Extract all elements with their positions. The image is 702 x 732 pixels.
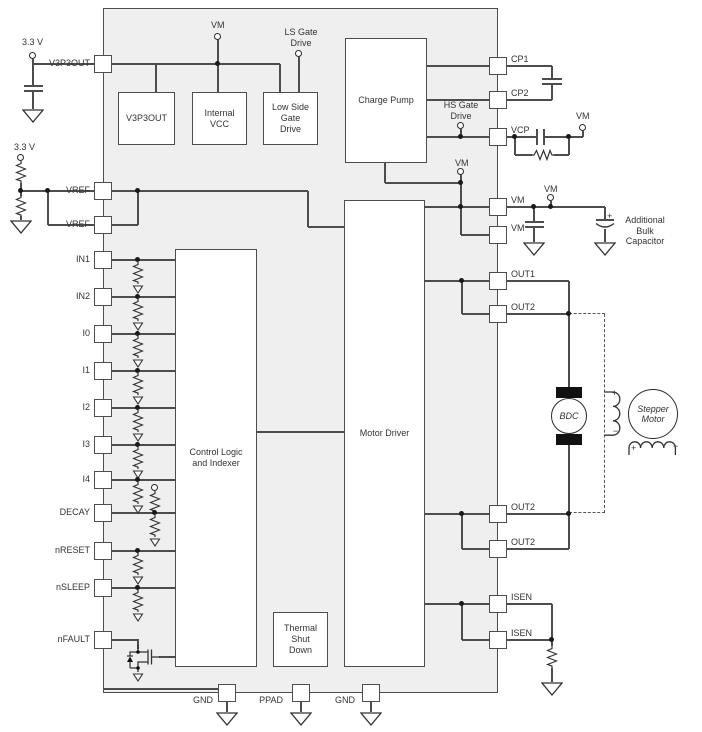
pin-i3 bbox=[94, 436, 112, 454]
pin-cp1 bbox=[489, 57, 507, 75]
pin-label: VCP bbox=[511, 125, 530, 136]
pin-label: OUT2 bbox=[511, 502, 535, 513]
pin-label: I2 bbox=[82, 402, 90, 413]
bdc-brush-bottom bbox=[556, 434, 582, 445]
pin-label: V3P3OUT bbox=[49, 58, 90, 69]
pin-vref-1 bbox=[94, 182, 112, 200]
terminal-3v3-vref bbox=[17, 154, 24, 161]
arrow-ground-icon bbox=[132, 359, 144, 368]
arrow-ground-icon bbox=[132, 505, 144, 514]
block-diagram: V3P3OUT Internal VCC Low Side Gate Drive… bbox=[0, 0, 702, 732]
terminal-3v3-top bbox=[29, 52, 36, 59]
terminal-vm-charge-pump bbox=[457, 168, 464, 175]
pin-label: DECAY bbox=[60, 507, 90, 518]
block-control-logic: Control Logic and Indexer bbox=[175, 249, 257, 667]
ground-icon bbox=[523, 242, 545, 256]
arrow-ground-icon bbox=[132, 613, 144, 622]
resistor bbox=[149, 515, 161, 537]
pin-label: I4 bbox=[82, 474, 90, 485]
pin-label: CP1 bbox=[511, 54, 529, 65]
pin-label: I0 bbox=[82, 328, 90, 339]
arrow-ground-icon bbox=[149, 538, 161, 547]
resistor bbox=[132, 590, 144, 612]
additional-bulk-capacitor-label: Additional Bulk Capacitor bbox=[613, 215, 677, 247]
pin-i2 bbox=[94, 399, 112, 417]
stepper-motor: Stepper Motor bbox=[628, 389, 678, 439]
pin-label: nFAULT bbox=[58, 634, 90, 645]
ground-icon bbox=[290, 712, 312, 726]
pin-label: OUT2 bbox=[511, 537, 535, 548]
arrow-ground-icon bbox=[132, 576, 144, 585]
pin-vcp bbox=[489, 128, 507, 146]
polarized-capacitor-plate bbox=[595, 222, 615, 231]
resistor bbox=[132, 482, 144, 504]
supply-label: 3.3 V bbox=[14, 142, 35, 153]
pin-label: ISEN bbox=[511, 628, 532, 639]
arrow-ground-icon bbox=[132, 433, 144, 442]
pin-out2-c bbox=[489, 540, 507, 558]
terminal-vm-vcp bbox=[579, 124, 586, 131]
bdc-motor: BDC bbox=[551, 398, 587, 434]
winding-plus: + bbox=[631, 444, 636, 453]
resistor bbox=[132, 553, 144, 575]
ground-icon bbox=[360, 712, 382, 726]
resistor bbox=[546, 646, 558, 668]
pin-in1 bbox=[94, 251, 112, 269]
pin-nreset bbox=[94, 542, 112, 560]
resistor bbox=[132, 447, 144, 469]
pin-i4 bbox=[94, 471, 112, 489]
terminal-decay-pullup bbox=[151, 484, 158, 491]
winding-minus: − bbox=[613, 427, 618, 436]
pin-decay bbox=[94, 504, 112, 522]
winding-minus: − bbox=[673, 442, 678, 451]
pin-label: GND bbox=[335, 695, 355, 706]
block-internal-vcc: Internal VCC bbox=[192, 92, 247, 145]
resistor bbox=[532, 149, 554, 161]
block-v3p3out: V3P3OUT bbox=[118, 92, 175, 145]
terminal-label-hs-gate: HS Gate Drive bbox=[439, 100, 483, 121]
supply-label: 3.3 V bbox=[22, 37, 43, 48]
pin-in2 bbox=[94, 288, 112, 306]
arrow-ground-icon bbox=[132, 322, 144, 331]
arrow-ground-icon bbox=[132, 285, 144, 294]
pin-isen-1 bbox=[489, 595, 507, 613]
block-motor-driver: Motor Driver bbox=[344, 200, 425, 667]
block-low-side-gate-drive: Low Side Gate Drive bbox=[263, 92, 318, 145]
resistor bbox=[132, 410, 144, 432]
terminal-label-vm: VM bbox=[576, 111, 590, 122]
pin-out1 bbox=[489, 272, 507, 290]
pin-vm-1 bbox=[489, 198, 507, 216]
pin-gnd-2 bbox=[362, 684, 380, 702]
pin-label: IN2 bbox=[76, 291, 90, 302]
pin-label: IN1 bbox=[76, 254, 90, 265]
block-thermal-shutdown: Thermal Shut Down bbox=[273, 612, 328, 667]
pin-label: VREF bbox=[66, 219, 90, 230]
terminal-label-vm: VM bbox=[455, 158, 469, 169]
nfault-mosfet-icon bbox=[124, 645, 160, 673]
pin-label: I3 bbox=[82, 439, 90, 450]
terminal-ls-gate-drive bbox=[295, 50, 302, 57]
terminal-vm-top bbox=[214, 33, 221, 40]
pin-i0 bbox=[94, 325, 112, 343]
block-v3p3out-label: V3P3OUT bbox=[126, 113, 167, 124]
bulk-cap-plus: + bbox=[607, 212, 612, 221]
resistor bbox=[15, 161, 27, 183]
winding-plus: + bbox=[612, 389, 617, 398]
pin-nsleep bbox=[94, 579, 112, 597]
pin-label: VM bbox=[511, 223, 525, 234]
pin-label: ISEN bbox=[511, 592, 532, 603]
pin-label: GND bbox=[193, 695, 213, 706]
pin-i1 bbox=[94, 362, 112, 380]
resistor bbox=[15, 195, 27, 217]
pin-label: VM bbox=[511, 195, 525, 206]
pin-label: VREF bbox=[66, 185, 90, 196]
resistor bbox=[132, 262, 144, 284]
pin-ppad bbox=[292, 684, 310, 702]
block-charge-pump: Charge Pump bbox=[345, 38, 427, 163]
bdc-brush-top bbox=[556, 387, 582, 398]
terminal-hs-gate-drive bbox=[457, 122, 464, 129]
pin-vref-2 bbox=[94, 216, 112, 234]
pin-nfault bbox=[94, 631, 112, 649]
ground-icon bbox=[10, 220, 32, 234]
terminal-label-vm: VM bbox=[211, 20, 225, 31]
pin-cp2 bbox=[489, 91, 507, 109]
pin-label: I1 bbox=[82, 365, 90, 376]
pin-vm-2 bbox=[489, 226, 507, 244]
ground-icon bbox=[216, 712, 238, 726]
arrow-ground-icon bbox=[132, 673, 144, 682]
arrow-ground-icon bbox=[132, 396, 144, 405]
terminal-label-vm: VM bbox=[544, 184, 558, 195]
pin-isen-2 bbox=[489, 631, 507, 649]
pin-v3p3out bbox=[94, 55, 112, 73]
pin-label: OUT2 bbox=[511, 302, 535, 313]
resistor bbox=[132, 336, 144, 358]
pin-gnd-1 bbox=[218, 684, 236, 702]
ground-icon bbox=[541, 682, 563, 696]
terminal-vm-bulk bbox=[547, 194, 554, 201]
pin-label: OUT1 bbox=[511, 269, 535, 280]
pin-out2-b bbox=[489, 505, 507, 523]
pin-label: nRESET bbox=[55, 545, 90, 556]
pin-label: CP2 bbox=[511, 88, 529, 99]
ground-icon bbox=[22, 109, 44, 123]
resistor bbox=[132, 373, 144, 395]
terminal-label-ls-gate: LS Gate Drive bbox=[279, 27, 323, 48]
resistor bbox=[132, 299, 144, 321]
pin-out2-a bbox=[489, 305, 507, 323]
pin-label: nSLEEP bbox=[56, 582, 90, 593]
pin-label: PPAD bbox=[259, 695, 283, 706]
